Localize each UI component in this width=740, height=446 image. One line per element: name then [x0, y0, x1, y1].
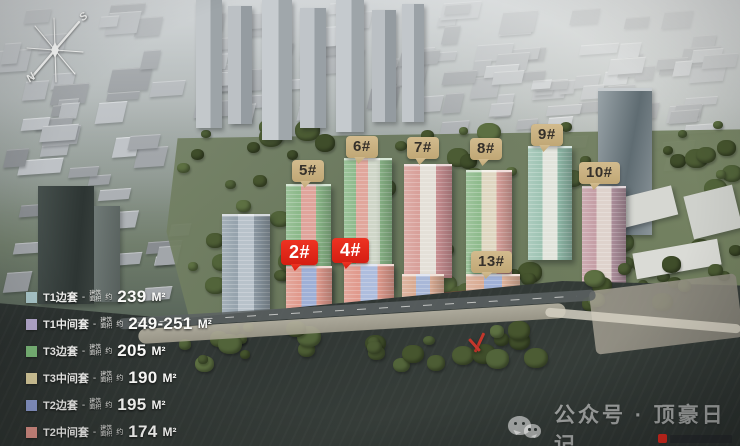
legend-area-value: 239 — [117, 287, 146, 307]
aerial-rendering: S N T1边套 - 建筑面积 约 239 M² T1中间套 - 建筑面积 约 … — [0, 0, 740, 446]
building-marker-label: 8# — [477, 141, 495, 156]
legend-separator: - — [93, 373, 96, 384]
legend-area-unit: M² — [162, 371, 176, 385]
building-marker-label: 4# — [340, 241, 361, 259]
building-marker-8: 8# — [470, 138, 502, 160]
building-marker-10: 10# — [579, 162, 620, 184]
legend-type-label: T2中间套 — [43, 424, 89, 440]
building-marker-label: 2# — [289, 243, 310, 261]
legend-color-swatch — [26, 373, 37, 384]
legend-approx-label: 约 — [116, 319, 123, 329]
legend-area-value: 205 — [117, 341, 146, 361]
legend-area-note: 建筑面积 — [100, 318, 112, 331]
legend-area-value: 174 — [128, 422, 157, 442]
legend-approx-label: 约 — [105, 346, 112, 356]
legend-area-note: 建筑面积 — [89, 291, 101, 304]
wechat-icon — [508, 415, 544, 443]
legend-type-label: T3中间套 — [43, 370, 89, 386]
legend-color-swatch — [26, 292, 37, 303]
building-marker-4: 4# — [332, 238, 369, 263]
legend-type-label: T1边套 — [43, 289, 78, 305]
legend-row: T1边套 - 建筑面积 约 239 M² — [26, 288, 212, 306]
legend-row: T2中间套 - 建筑面积 约 174 M² — [26, 423, 212, 441]
legend-type-label: T1中间套 — [43, 316, 89, 332]
legend-area-value: 195 — [117, 395, 146, 415]
building-marker-label: 13# — [478, 254, 505, 269]
legend-row: T3边套 - 建筑面积 约 205 M² — [26, 342, 212, 360]
legend-approx-label: 约 — [105, 400, 112, 410]
legend-area-value: 249-251 — [128, 314, 193, 334]
unit-area-legend: T1边套 - 建筑面积 约 239 M² T1中间套 - 建筑面积 约 249-… — [26, 288, 212, 446]
building-marker-7: 7# — [407, 137, 439, 159]
building-marker-label: 9# — [538, 127, 556, 142]
legend-color-swatch — [26, 346, 37, 357]
building-marker-label: 10# — [586, 165, 613, 180]
source-logo — [658, 434, 732, 443]
legend-area-unit: M² — [151, 398, 165, 412]
building-marker-13: 13# — [471, 251, 512, 273]
legend-area-note: 建筑面积 — [100, 372, 112, 385]
legend-row: T2边套 - 建筑面积 约 195 M² — [26, 396, 212, 414]
building-marker-5: 5# — [292, 160, 324, 182]
building-marker-label: 6# — [353, 139, 371, 154]
legend-area-note: 建筑面积 — [100, 426, 112, 439]
legend-separator: - — [93, 319, 96, 330]
source-logo-icon — [658, 434, 667, 443]
legend-separator: - — [82, 346, 85, 357]
building-marker-label: 5# — [299, 163, 317, 178]
legend-area-value: 190 — [128, 368, 157, 388]
legend-area-unit: M² — [162, 425, 176, 439]
legend-approx-label: 约 — [116, 427, 123, 437]
legend-type-label: T2边套 — [43, 397, 78, 413]
building-marker-9: 9# — [531, 124, 563, 146]
legend-separator: - — [82, 400, 85, 411]
legend-area-note: 建筑面积 — [89, 399, 101, 412]
legend-area-unit: M² — [198, 317, 212, 331]
building-marker-6: 6# — [346, 136, 378, 158]
source-logo-text-blur — [670, 435, 732, 443]
legend-color-swatch — [26, 400, 37, 411]
legend-type-label: T3边套 — [43, 343, 78, 359]
building-marker-label: 7# — [414, 140, 432, 155]
legend-row: T1中间套 - 建筑面积 约 249-251 M² — [26, 315, 212, 333]
legend-color-swatch — [26, 427, 37, 438]
legend-row: T3中间套 - 建筑面积 约 190 M² — [26, 369, 212, 387]
legend-color-swatch — [26, 319, 37, 330]
legend-approx-label: 约 — [116, 373, 123, 383]
legend-area-unit: M² — [151, 290, 165, 304]
legend-separator: - — [93, 427, 96, 438]
legend-approx-label: 约 — [105, 292, 112, 302]
legend-area-note: 建筑面积 — [89, 345, 101, 358]
legend-area-unit: M² — [151, 344, 165, 358]
building-marker-2: 2# — [281, 240, 318, 265]
compass-rose: S N — [24, 10, 92, 96]
legend-separator: - — [82, 292, 85, 303]
